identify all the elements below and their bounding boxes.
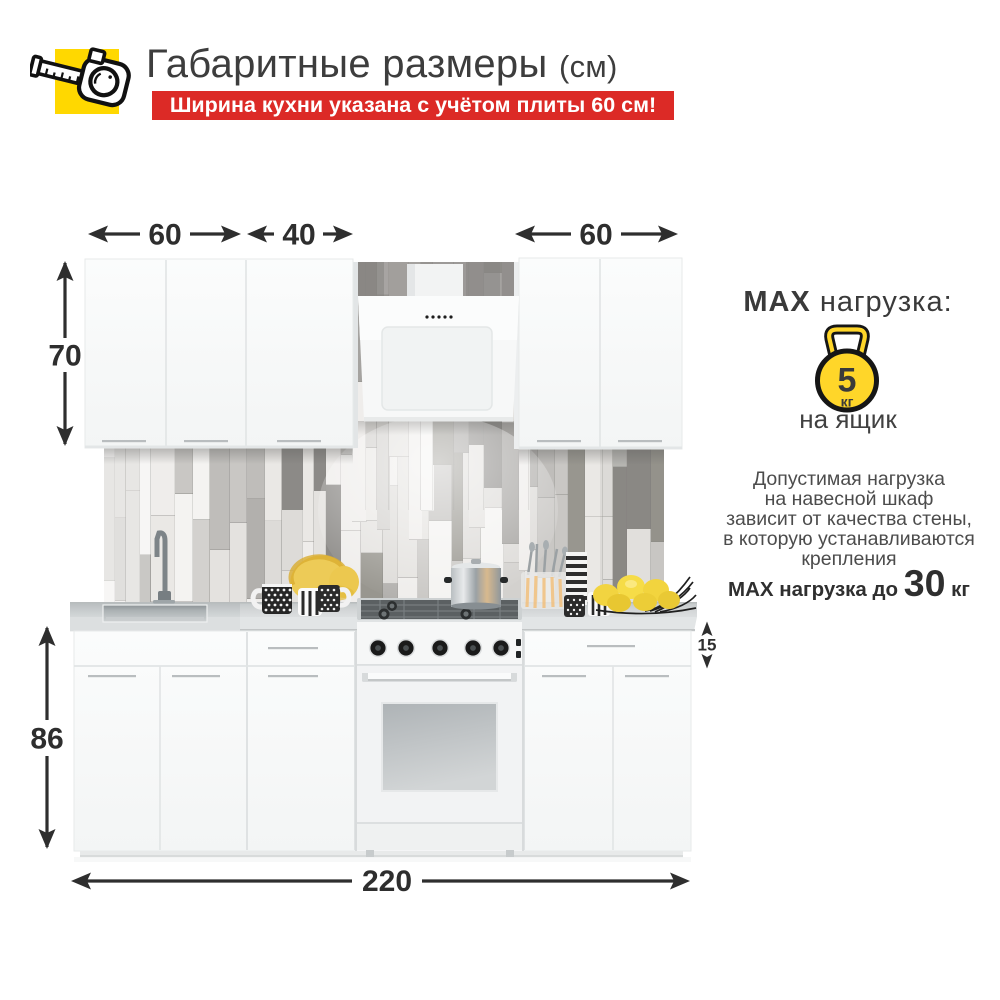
svg-text:70: 70 xyxy=(48,340,81,373)
svg-text:220: 220 xyxy=(362,865,412,898)
svg-text:60: 60 xyxy=(579,219,612,252)
svg-text:15: 15 xyxy=(698,636,717,655)
svg-text:40: 40 xyxy=(282,219,315,252)
svg-text:60: 60 xyxy=(148,219,181,252)
svg-text:86: 86 xyxy=(30,723,63,756)
